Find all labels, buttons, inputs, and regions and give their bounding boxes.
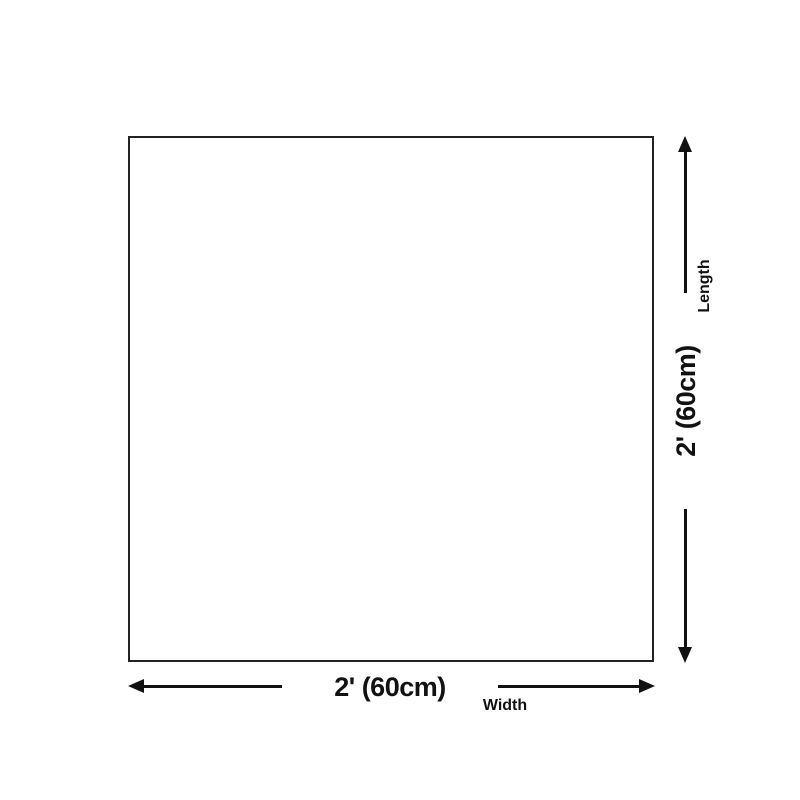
width-dimension: 2' (60cm) Width [128,663,655,718]
length-dimension: 2' (60cm) Length [662,136,717,663]
arrow-up-icon [678,136,692,152]
width-dimension-line-right [498,685,640,688]
diagram-canvas: 2' (60cm) Width 2' (60cm) Length [0,0,800,800]
length-dimension-label: Length [696,241,713,331]
arrow-right-icon [639,679,655,693]
length-dimension-line-top [684,151,687,293]
width-dimension-label: Width [460,697,550,714]
width-dimension-line-left [141,685,282,688]
product-outline-square [128,136,654,662]
length-dimension-line-bottom [684,509,687,650]
